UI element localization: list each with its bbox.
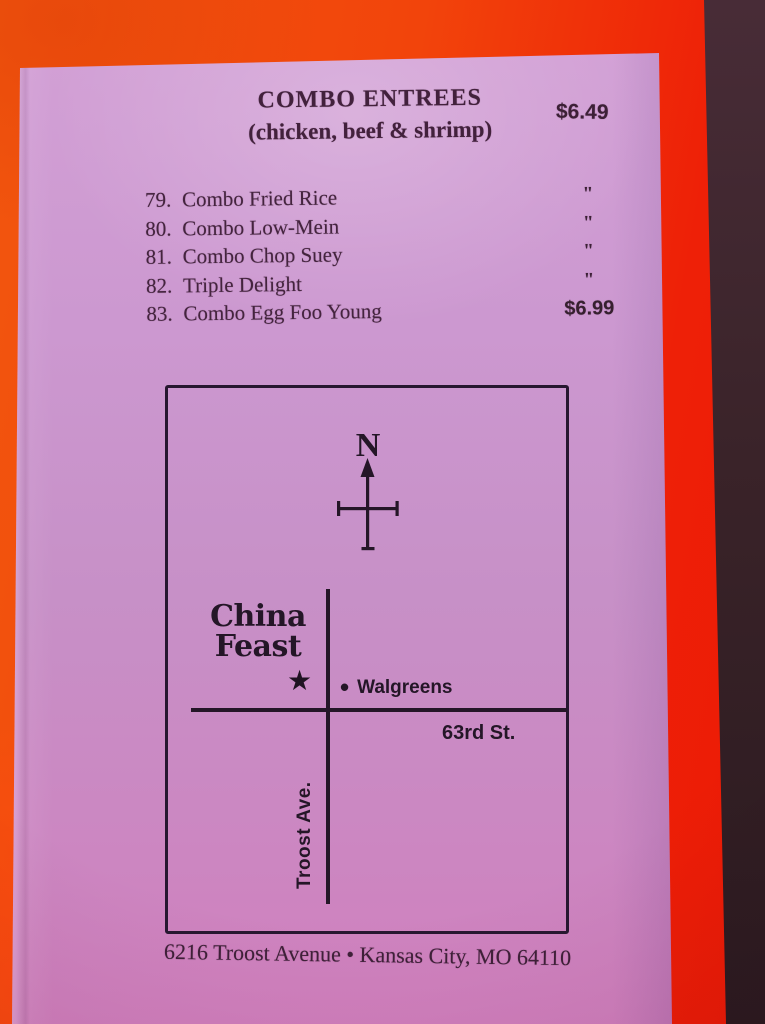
item-price-ditto: " bbox=[559, 209, 617, 238]
compass-n-label: N bbox=[356, 427, 381, 464]
menu-item: 83. Combo Egg Foo Young $6.99 bbox=[146, 294, 618, 328]
landmark-dot-icon: • bbox=[340, 682, 349, 692]
star-location-icon: ★ bbox=[287, 668, 312, 696]
restaurant-name-line2: Feast bbox=[198, 632, 318, 662]
street-label-63rd: 63rd St. bbox=[442, 722, 515, 745]
item-number: 81. bbox=[146, 242, 183, 271]
item-number: 80. bbox=[145, 214, 182, 243]
item-name: Combo Egg Foo Young bbox=[183, 294, 618, 328]
menu-item-list: 79. Combo Fried Rice " 80. Combo Low-Mei… bbox=[145, 180, 619, 328]
section-subtitle: (chicken, beef & shrimp) bbox=[140, 115, 600, 147]
compass-north-icon: N bbox=[328, 412, 408, 557]
item-number: 83. bbox=[146, 299, 183, 328]
compass-crossbar bbox=[338, 507, 398, 510]
restaurant-name-line1: China bbox=[198, 602, 318, 632]
menu-photo: COMBO ENTREES (chicken, beef & shrimp) $… bbox=[0, 0, 765, 1024]
item-number: 79. bbox=[145, 185, 182, 214]
item-price-ditto: " bbox=[560, 266, 618, 295]
walgreens-landmark: • Walgreens bbox=[340, 677, 453, 699]
compass-shaft bbox=[366, 473, 369, 550]
63rd-st-road-line bbox=[191, 708, 567, 712]
troost-ave-road-line bbox=[326, 589, 330, 904]
compass-west-cap bbox=[337, 501, 340, 516]
compass-east-cap bbox=[396, 501, 399, 516]
item-number: 82. bbox=[146, 271, 183, 300]
item-price: $6.99 bbox=[560, 294, 618, 323]
section-price: $6.49 bbox=[556, 100, 609, 125]
item-price-ditto: " bbox=[559, 180, 617, 209]
section-title: COMBO ENTREES bbox=[170, 84, 570, 116]
restaurant-name: China Feast bbox=[198, 602, 318, 662]
menu-page: COMBO ENTREES (chicken, beef & shrimp) $… bbox=[0, 0, 765, 1024]
item-price-ditto: " bbox=[559, 237, 617, 266]
landmark-label: Walgreens bbox=[357, 677, 452, 699]
compass-south-cap bbox=[362, 547, 375, 550]
street-label-troost: Troost Ave. bbox=[294, 781, 316, 889]
